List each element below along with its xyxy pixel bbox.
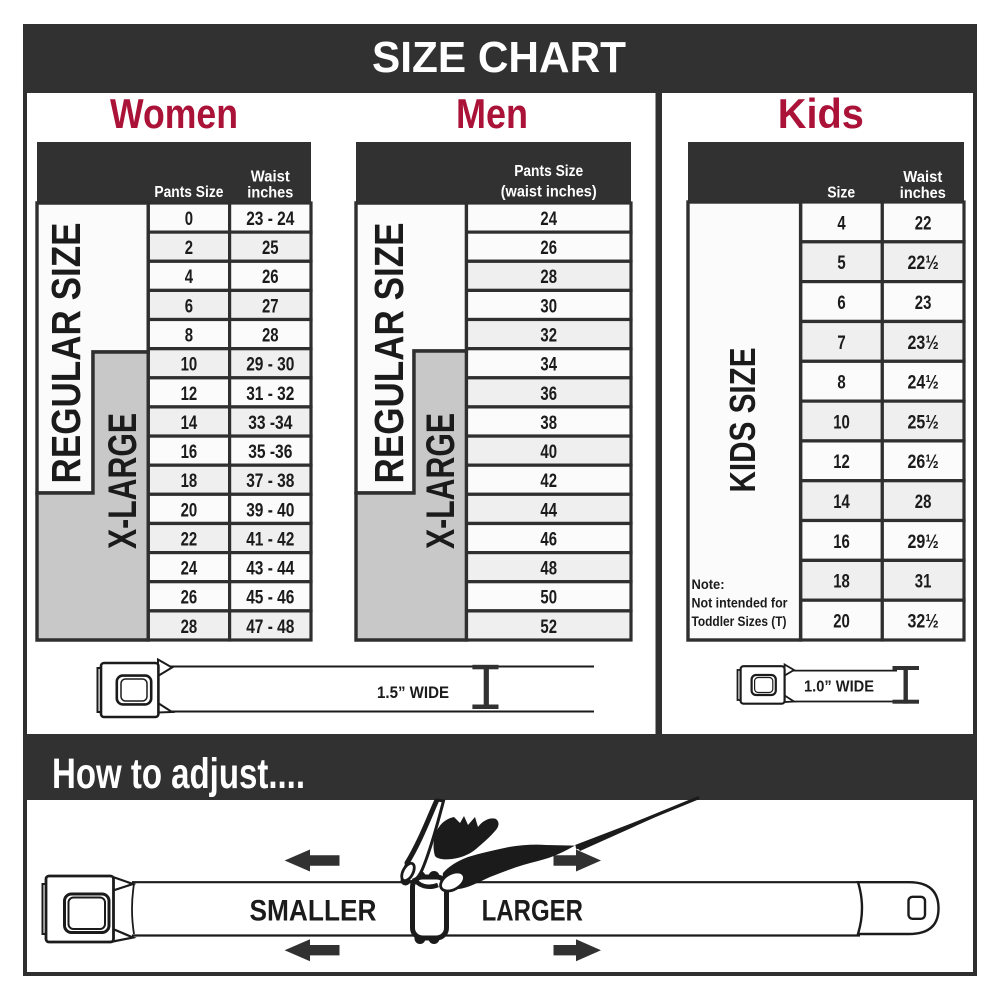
svg-text:31 - 32: 31 - 32	[246, 383, 294, 405]
svg-text:33 -34: 33 -34	[248, 412, 292, 434]
svg-text:10: 10	[833, 411, 850, 433]
svg-text:1.0” WIDE: 1.0” WIDE	[804, 679, 874, 696]
svg-text:6: 6	[837, 292, 845, 314]
svg-text:Waist: Waist	[251, 169, 290, 186]
svg-text:1.5” WIDE: 1.5” WIDE	[377, 684, 449, 702]
svg-text:24: 24	[181, 558, 198, 580]
svg-text:SMALLER: SMALLER	[250, 895, 377, 928]
svg-text:45 - 46: 45 - 46	[246, 587, 294, 609]
svg-text:42: 42	[540, 470, 557, 492]
svg-text:47 - 48: 47 - 48	[246, 616, 294, 638]
svg-text:46: 46	[540, 528, 557, 550]
svg-text:Kids: Kids	[778, 90, 864, 137]
svg-text:27: 27	[262, 295, 279, 317]
svg-text:35 -36: 35 -36	[248, 441, 292, 463]
svg-text:Not intended for: Not intended for	[692, 596, 788, 612]
svg-text:29 - 30: 29 - 30	[246, 354, 294, 376]
svg-text:Women: Women	[110, 90, 238, 137]
svg-text:0: 0	[185, 208, 193, 230]
svg-text:43 - 44: 43 - 44	[246, 558, 294, 580]
svg-text:39 - 40: 39 - 40	[246, 499, 294, 521]
svg-text:26: 26	[181, 587, 198, 609]
svg-text:Men: Men	[456, 90, 528, 137]
svg-text:inches: inches	[900, 185, 946, 202]
svg-text:inches: inches	[247, 185, 293, 202]
svg-text:22: 22	[915, 212, 932, 234]
svg-text:26: 26	[540, 237, 557, 259]
svg-text:16: 16	[833, 531, 850, 553]
svg-text:50: 50	[540, 587, 557, 609]
svg-text:20: 20	[181, 499, 198, 521]
svg-text:8: 8	[837, 372, 845, 394]
svg-text:32: 32	[540, 325, 557, 347]
svg-text:28: 28	[540, 266, 557, 288]
svg-text:52: 52	[540, 616, 557, 638]
svg-text:48: 48	[540, 558, 557, 580]
svg-text:X-LARGE: X-LARGE	[101, 413, 145, 549]
svg-text:44: 44	[540, 499, 557, 521]
svg-text:Size: Size	[827, 185, 855, 202]
svg-text:Toddler Sizes (T): Toddler Sizes (T)	[692, 614, 787, 630]
svg-text:(waist inches): (waist inches)	[501, 184, 597, 201]
svg-text:23: 23	[915, 292, 932, 314]
svg-text:Note:: Note:	[692, 577, 725, 593]
svg-text:18: 18	[833, 571, 850, 593]
svg-text:12: 12	[833, 451, 850, 473]
svg-text:23 - 24: 23 - 24	[246, 208, 294, 230]
svg-text:4: 4	[185, 266, 193, 288]
svg-text:36: 36	[540, 383, 557, 405]
svg-text:2: 2	[185, 237, 193, 259]
svg-text:20: 20	[833, 611, 850, 633]
svg-text:25½: 25½	[908, 411, 939, 433]
svg-text:14: 14	[181, 412, 198, 434]
svg-text:26: 26	[262, 266, 279, 288]
svg-text:LARGER: LARGER	[482, 895, 583, 928]
svg-text:REGULAR SIZE: REGULAR SIZE	[366, 223, 412, 484]
svg-text:X-LARGE: X-LARGE	[419, 413, 463, 549]
svg-text:28: 28	[262, 325, 279, 347]
svg-text:28: 28	[181, 616, 198, 638]
svg-text:26½: 26½	[908, 451, 939, 473]
svg-text:25: 25	[262, 237, 279, 259]
svg-text:Waist: Waist	[903, 169, 942, 186]
svg-text:22: 22	[181, 528, 198, 550]
svg-text:4: 4	[837, 212, 845, 234]
svg-text:6: 6	[185, 295, 193, 317]
svg-text:Pants Size: Pants Size	[514, 163, 583, 180]
svg-text:37 - 38: 37 - 38	[246, 470, 294, 492]
svg-text:5: 5	[837, 252, 845, 274]
svg-text:32½: 32½	[908, 611, 939, 633]
svg-text:Pants Size: Pants Size	[154, 184, 223, 201]
svg-text:23½: 23½	[908, 332, 939, 354]
svg-text:22½: 22½	[908, 252, 939, 274]
svg-text:7: 7	[837, 332, 845, 354]
svg-text:28: 28	[915, 491, 932, 513]
svg-text:14: 14	[833, 491, 850, 513]
svg-text:24: 24	[540, 208, 557, 230]
svg-text:38: 38	[540, 412, 557, 434]
svg-text:REGULAR SIZE: REGULAR SIZE	[43, 223, 89, 484]
svg-text:30: 30	[540, 295, 557, 317]
svg-text:12: 12	[181, 383, 198, 405]
svg-text:10: 10	[181, 354, 198, 376]
svg-text:34: 34	[540, 354, 557, 376]
svg-text:29½: 29½	[908, 531, 939, 553]
svg-text:41 - 42: 41 - 42	[246, 528, 294, 550]
svg-text:16: 16	[181, 441, 198, 463]
svg-text:8: 8	[185, 325, 193, 347]
svg-text:How to adjust....: How to adjust....	[52, 751, 305, 798]
svg-text:24½: 24½	[908, 372, 939, 394]
svg-text:18: 18	[181, 470, 198, 492]
svg-text:40: 40	[540, 441, 557, 463]
svg-text:SIZE CHART: SIZE CHART	[372, 33, 626, 82]
svg-text:31: 31	[915, 571, 932, 593]
svg-text:KIDS SIZE: KIDS SIZE	[722, 348, 763, 493]
